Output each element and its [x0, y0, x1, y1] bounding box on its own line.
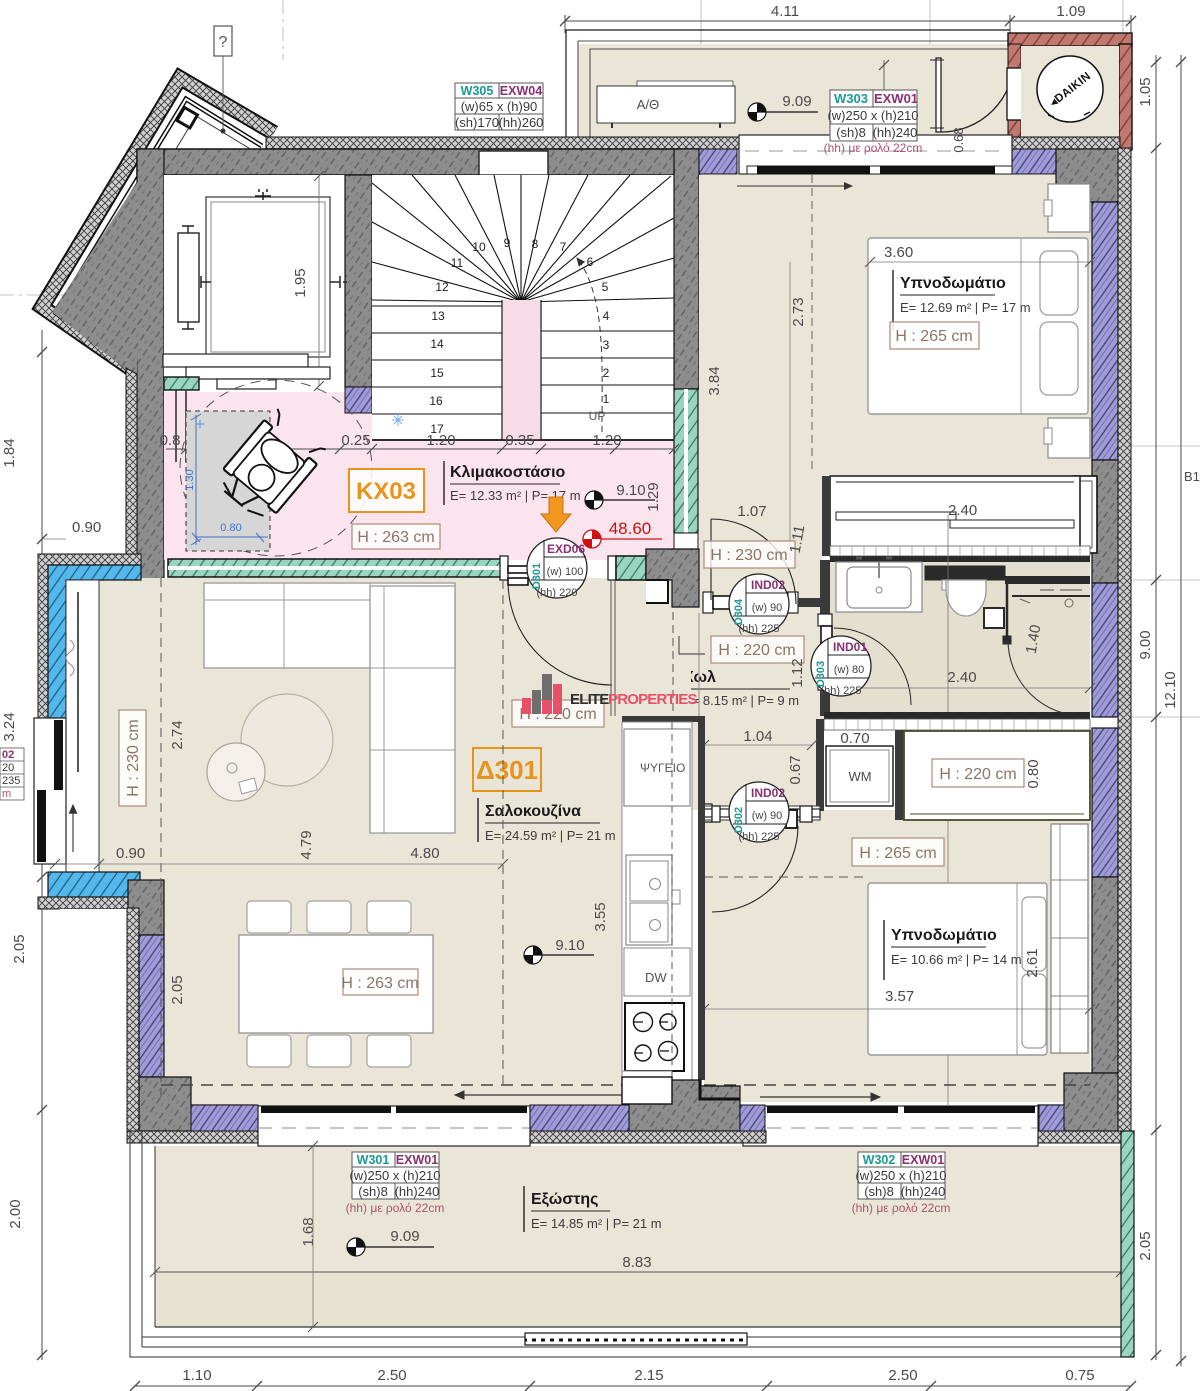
- svg-text:(hh)240: (hh)240: [873, 125, 918, 140]
- svg-text:1.07: 1.07: [737, 503, 766, 520]
- svg-text:D302: D302: [733, 807, 745, 833]
- svg-text:11: 11: [451, 256, 464, 270]
- svg-text:EXD06: EXD06: [547, 542, 585, 556]
- svg-text:0.90: 0.90: [116, 845, 145, 862]
- svg-text:1.20: 1.20: [592, 432, 621, 449]
- svg-text:D301: D301: [531, 563, 543, 589]
- svg-text:Α/Θ: Α/Θ: [637, 97, 659, 112]
- svg-text:(sh)170: (sh)170: [455, 115, 499, 130]
- svg-text:H : 265 cm: H : 265 cm: [859, 845, 936, 862]
- svg-text:2.40: 2.40: [947, 669, 976, 686]
- svg-text:(hh) με ρολό 22cm: (hh) με ρολό 22cm: [852, 1201, 951, 1215]
- svg-text:12.10: 12.10: [1162, 671, 1179, 709]
- svg-text:9.00: 9.00: [1137, 630, 1154, 659]
- svg-text:1.04: 1.04: [743, 728, 772, 745]
- svg-text:E= 12.69 m² | P= 17 m: E= 12.69 m² | P= 17 m: [900, 300, 1031, 315]
- svg-text:1.09: 1.09: [1056, 3, 1085, 20]
- svg-text:E= 10.66 m² | P= 14 m: E= 10.66 m² | P= 14 m: [891, 952, 1022, 967]
- svg-text:IND02: IND02: [751, 786, 785, 800]
- svg-text:14: 14: [430, 337, 444, 351]
- svg-text:2.05: 2.05: [11, 934, 28, 963]
- svg-text:W302: W302: [863, 1153, 896, 1167]
- svg-text:Εξώστης: Εξώστης: [531, 1191, 599, 1208]
- svg-text:EXW04: EXW04: [500, 84, 542, 98]
- svg-text:(sh)8: (sh)8: [358, 1184, 388, 1199]
- svg-text:1.95: 1.95: [292, 268, 309, 297]
- svg-text:0.80: 0.80: [1025, 759, 1042, 788]
- svg-text:EXW01: EXW01: [396, 1153, 438, 1167]
- svg-text:10: 10: [472, 240, 486, 254]
- svg-text:0.90: 0.90: [72, 519, 101, 536]
- svg-text:(w) 80: (w) 80: [834, 664, 865, 676]
- svg-text:2.61: 2.61: [1024, 948, 1041, 977]
- svg-text:Σαλοκουζίνα: Σαλοκουζίνα: [485, 803, 581, 820]
- svg-text:2.00: 2.00: [7, 1199, 24, 1228]
- svg-text:ΨΥΓΕΙΟ: ΨΥΓΕΙΟ: [640, 761, 685, 775]
- svg-text:(w)250 x (h)210: (w)250 x (h)210: [855, 1168, 946, 1183]
- svg-text:(hh) 225: (hh) 225: [739, 831, 780, 843]
- svg-text:(w)65 x (h)90: (w)65 x (h)90: [461, 99, 538, 114]
- svg-text:4.79: 4.79: [298, 830, 315, 859]
- svg-text:H : 263 cm: H : 263 cm: [341, 975, 418, 992]
- svg-text:Κλιμακοστάσιο: Κλιμακοστάσιο: [450, 464, 566, 481]
- svg-text:0.25: 0.25: [341, 432, 370, 449]
- svg-text:0.8: 0.8: [160, 432, 181, 449]
- svg-text:(hh)240: (hh)240: [901, 1184, 946, 1199]
- svg-text:5: 5: [602, 280, 609, 294]
- svg-text:0.80: 0.80: [220, 522, 241, 534]
- svg-text:2.50: 2.50: [888, 1367, 917, 1384]
- svg-text:EXW01: EXW01: [902, 1153, 944, 1167]
- svg-text:9.09: 9.09: [390, 1228, 419, 1245]
- svg-text:ELITE: ELITE: [570, 691, 609, 708]
- svg-text:2.40: 2.40: [948, 502, 977, 519]
- svg-text:Υπνοδωμάτιο: Υπνοδωμάτιο: [900, 275, 1006, 292]
- svg-text:12: 12: [435, 280, 449, 294]
- svg-text:EXW01: EXW01: [874, 91, 918, 106]
- svg-text:(w)250 x (h)210: (w)250 x (h)210: [349, 1168, 440, 1183]
- svg-text:(w) 90: (w) 90: [752, 602, 783, 614]
- svg-text:H : 230 cm: H : 230 cm: [125, 719, 142, 796]
- svg-text:(hh) 220: (hh) 220: [537, 587, 578, 599]
- svg-text:H : 263 cm: H : 263 cm: [357, 529, 434, 546]
- svg-text:1.84: 1.84: [1, 438, 18, 467]
- svg-text:3: 3: [603, 338, 610, 352]
- svg-text:B1-: B1-: [1184, 469, 1200, 484]
- svg-text:W301: W301: [357, 1153, 390, 1167]
- svg-text:02: 02: [2, 749, 14, 761]
- svg-text:D304: D304: [733, 598, 745, 625]
- svg-text:UP: UP: [589, 409, 606, 423]
- svg-text:1.10: 1.10: [182, 1367, 211, 1384]
- svg-text:9.10: 9.10: [555, 937, 584, 954]
- svg-text:4: 4: [603, 309, 610, 323]
- svg-text:H : 265 cm: H : 265 cm: [895, 328, 972, 345]
- svg-text:1.12: 1.12: [789, 658, 806, 687]
- svg-text:2.15: 2.15: [634, 1367, 663, 1384]
- svg-text:KX03: KX03: [356, 478, 416, 505]
- svg-text:2.73: 2.73: [790, 297, 807, 326]
- svg-text:1.20: 1.20: [426, 432, 455, 449]
- svg-text:(sh)8: (sh)8: [836, 125, 866, 140]
- svg-text:3.60: 3.60: [884, 244, 913, 261]
- svg-text:E= 8.15 m² | P= 9 m: E= 8.15 m² | P= 9 m: [683, 693, 799, 708]
- svg-text:1.05: 1.05: [1137, 77, 1154, 106]
- svg-text:D303: D303: [815, 661, 827, 687]
- svg-text:H : 220 cm: H : 220 cm: [939, 766, 1016, 783]
- svg-text:DW: DW: [645, 970, 667, 985]
- svg-text:9: 9: [504, 236, 511, 250]
- svg-text:1.30: 1.30: [184, 469, 196, 490]
- svg-text:4.80: 4.80: [410, 845, 439, 862]
- svg-text:(hh) με ρολό 22cm: (hh) με ρολό 22cm: [824, 141, 923, 155]
- svg-text:(w)250 x (h)210: (w)250 x (h)210: [827, 108, 918, 123]
- svg-text:0.70: 0.70: [840, 730, 869, 747]
- svg-text:8.83: 8.83: [622, 1254, 651, 1271]
- svg-text:2.50: 2.50: [377, 1367, 406, 1384]
- svg-text:H : 220 cm: H : 220 cm: [718, 642, 795, 659]
- svg-text:?: ?: [219, 34, 228, 51]
- svg-text:0.68: 0.68: [951, 127, 966, 152]
- svg-text:6: 6: [587, 255, 594, 269]
- svg-text:(hh) 225: (hh) 225: [821, 685, 862, 697]
- svg-text:9.10: 9.10: [616, 482, 645, 499]
- svg-text:Δ301: Δ301: [476, 755, 538, 785]
- svg-text:2: 2: [603, 366, 610, 380]
- svg-text:20: 20: [2, 762, 14, 774]
- svg-text:48.60: 48.60: [609, 519, 652, 538]
- svg-text:IND02: IND02: [751, 578, 785, 592]
- svg-text:3.57: 3.57: [885, 988, 914, 1005]
- svg-text:(hh)260: (hh)260: [499, 115, 544, 130]
- svg-text:2.74: 2.74: [169, 720, 186, 749]
- svg-text:(w) 100: (w) 100: [547, 566, 584, 578]
- svg-text:(hh)240: (hh)240: [395, 1184, 440, 1199]
- svg-text:W303: W303: [834, 91, 868, 106]
- svg-text:1.68: 1.68: [300, 1217, 317, 1246]
- svg-text:PROPERTIES: PROPERTIES: [608, 691, 697, 708]
- svg-text:WM: WM: [848, 769, 871, 784]
- svg-text:(sh)8: (sh)8: [864, 1184, 894, 1199]
- svg-text:0.67: 0.67: [787, 755, 804, 784]
- svg-text:H : 230 cm: H : 230 cm: [710, 547, 787, 564]
- svg-text:W305: W305: [461, 84, 494, 98]
- svg-text:(hh) 225: (hh) 225: [739, 623, 780, 635]
- svg-text:IND01: IND01: [833, 640, 867, 654]
- svg-text:0.35: 0.35: [505, 432, 534, 449]
- svg-text:Υπνοδωμάτιο: Υπνοδωμάτιο: [891, 927, 997, 944]
- svg-text:E= 24.59 m² | P= 21 m: E= 24.59 m² | P= 21 m: [485, 828, 616, 843]
- svg-text:13: 13: [431, 309, 445, 323]
- svg-text:1: 1: [603, 392, 610, 406]
- svg-text:0.75: 0.75: [1065, 1367, 1094, 1384]
- svg-text:m: m: [2, 788, 11, 800]
- svg-text:9.09: 9.09: [782, 93, 811, 110]
- svg-text:235: 235: [2, 775, 20, 787]
- svg-text:E= 14.85 m² | P= 21 m: E= 14.85 m² | P= 21 m: [531, 1216, 662, 1231]
- svg-text:2.05: 2.05: [169, 975, 186, 1004]
- svg-text:7: 7: [560, 240, 567, 254]
- svg-text:1.29: 1.29: [645, 482, 662, 511]
- svg-text:16: 16: [429, 394, 443, 408]
- svg-text:3.55: 3.55: [592, 902, 609, 931]
- svg-text:3.84: 3.84: [706, 366, 723, 395]
- svg-text:(w) 90: (w) 90: [752, 810, 783, 822]
- svg-text:4.11: 4.11: [771, 3, 799, 20]
- svg-text:(hh) με ρολό 22cm: (hh) με ρολό 22cm: [346, 1201, 445, 1215]
- svg-text:15: 15: [430, 366, 444, 380]
- svg-text:8: 8: [532, 237, 539, 251]
- svg-text:3.24: 3.24: [1, 712, 18, 741]
- svg-text:2.05: 2.05: [1137, 1231, 1154, 1260]
